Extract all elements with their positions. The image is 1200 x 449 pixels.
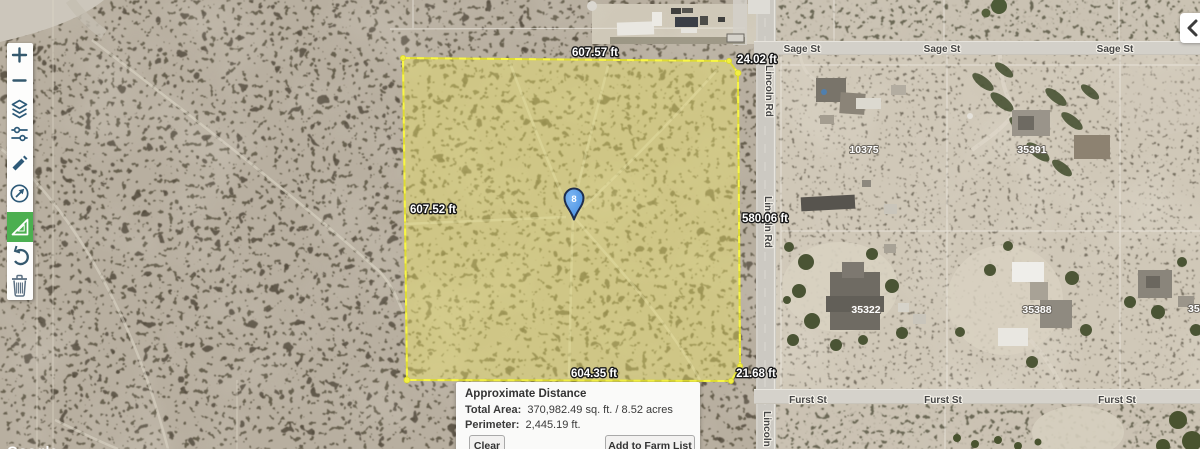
svg-text:8: 8 <box>571 194 576 205</box>
svg-text:35322: 35322 <box>851 304 880 316</box>
svg-text:Furst St: Furst St <box>1098 395 1136 406</box>
svg-text:Lincoln Rd: Lincoln Rd <box>763 65 774 117</box>
svg-text:Furst St: Furst St <box>789 395 827 406</box>
svg-text:Lincoln Rd: Lincoln Rd <box>761 411 772 449</box>
svg-text:Furst St: Furst St <box>924 395 962 406</box>
svg-text:Sage St: Sage St <box>924 44 961 55</box>
svg-text:24.02 ft: 24.02 ft <box>737 54 777 66</box>
svg-text:607.52 ft: 607.52 ft <box>410 204 456 216</box>
svg-text:Sage St: Sage St <box>784 44 821 55</box>
svg-text:10375: 10375 <box>849 144 878 156</box>
svg-text:Sage St: Sage St <box>1097 44 1134 55</box>
svg-text:607.57 ft: 607.57 ft <box>572 47 618 59</box>
svg-text:35388: 35388 <box>1022 304 1051 316</box>
svg-text:604.35 ft: 604.35 ft <box>571 368 617 380</box>
svg-text:35391: 35391 <box>1017 144 1046 156</box>
svg-text:35387: 35387 <box>1188 303 1200 315</box>
svg-text:21.68 ft: 21.68 ft <box>736 368 776 380</box>
svg-text:580.06 ft: 580.06 ft <box>742 213 788 225</box>
